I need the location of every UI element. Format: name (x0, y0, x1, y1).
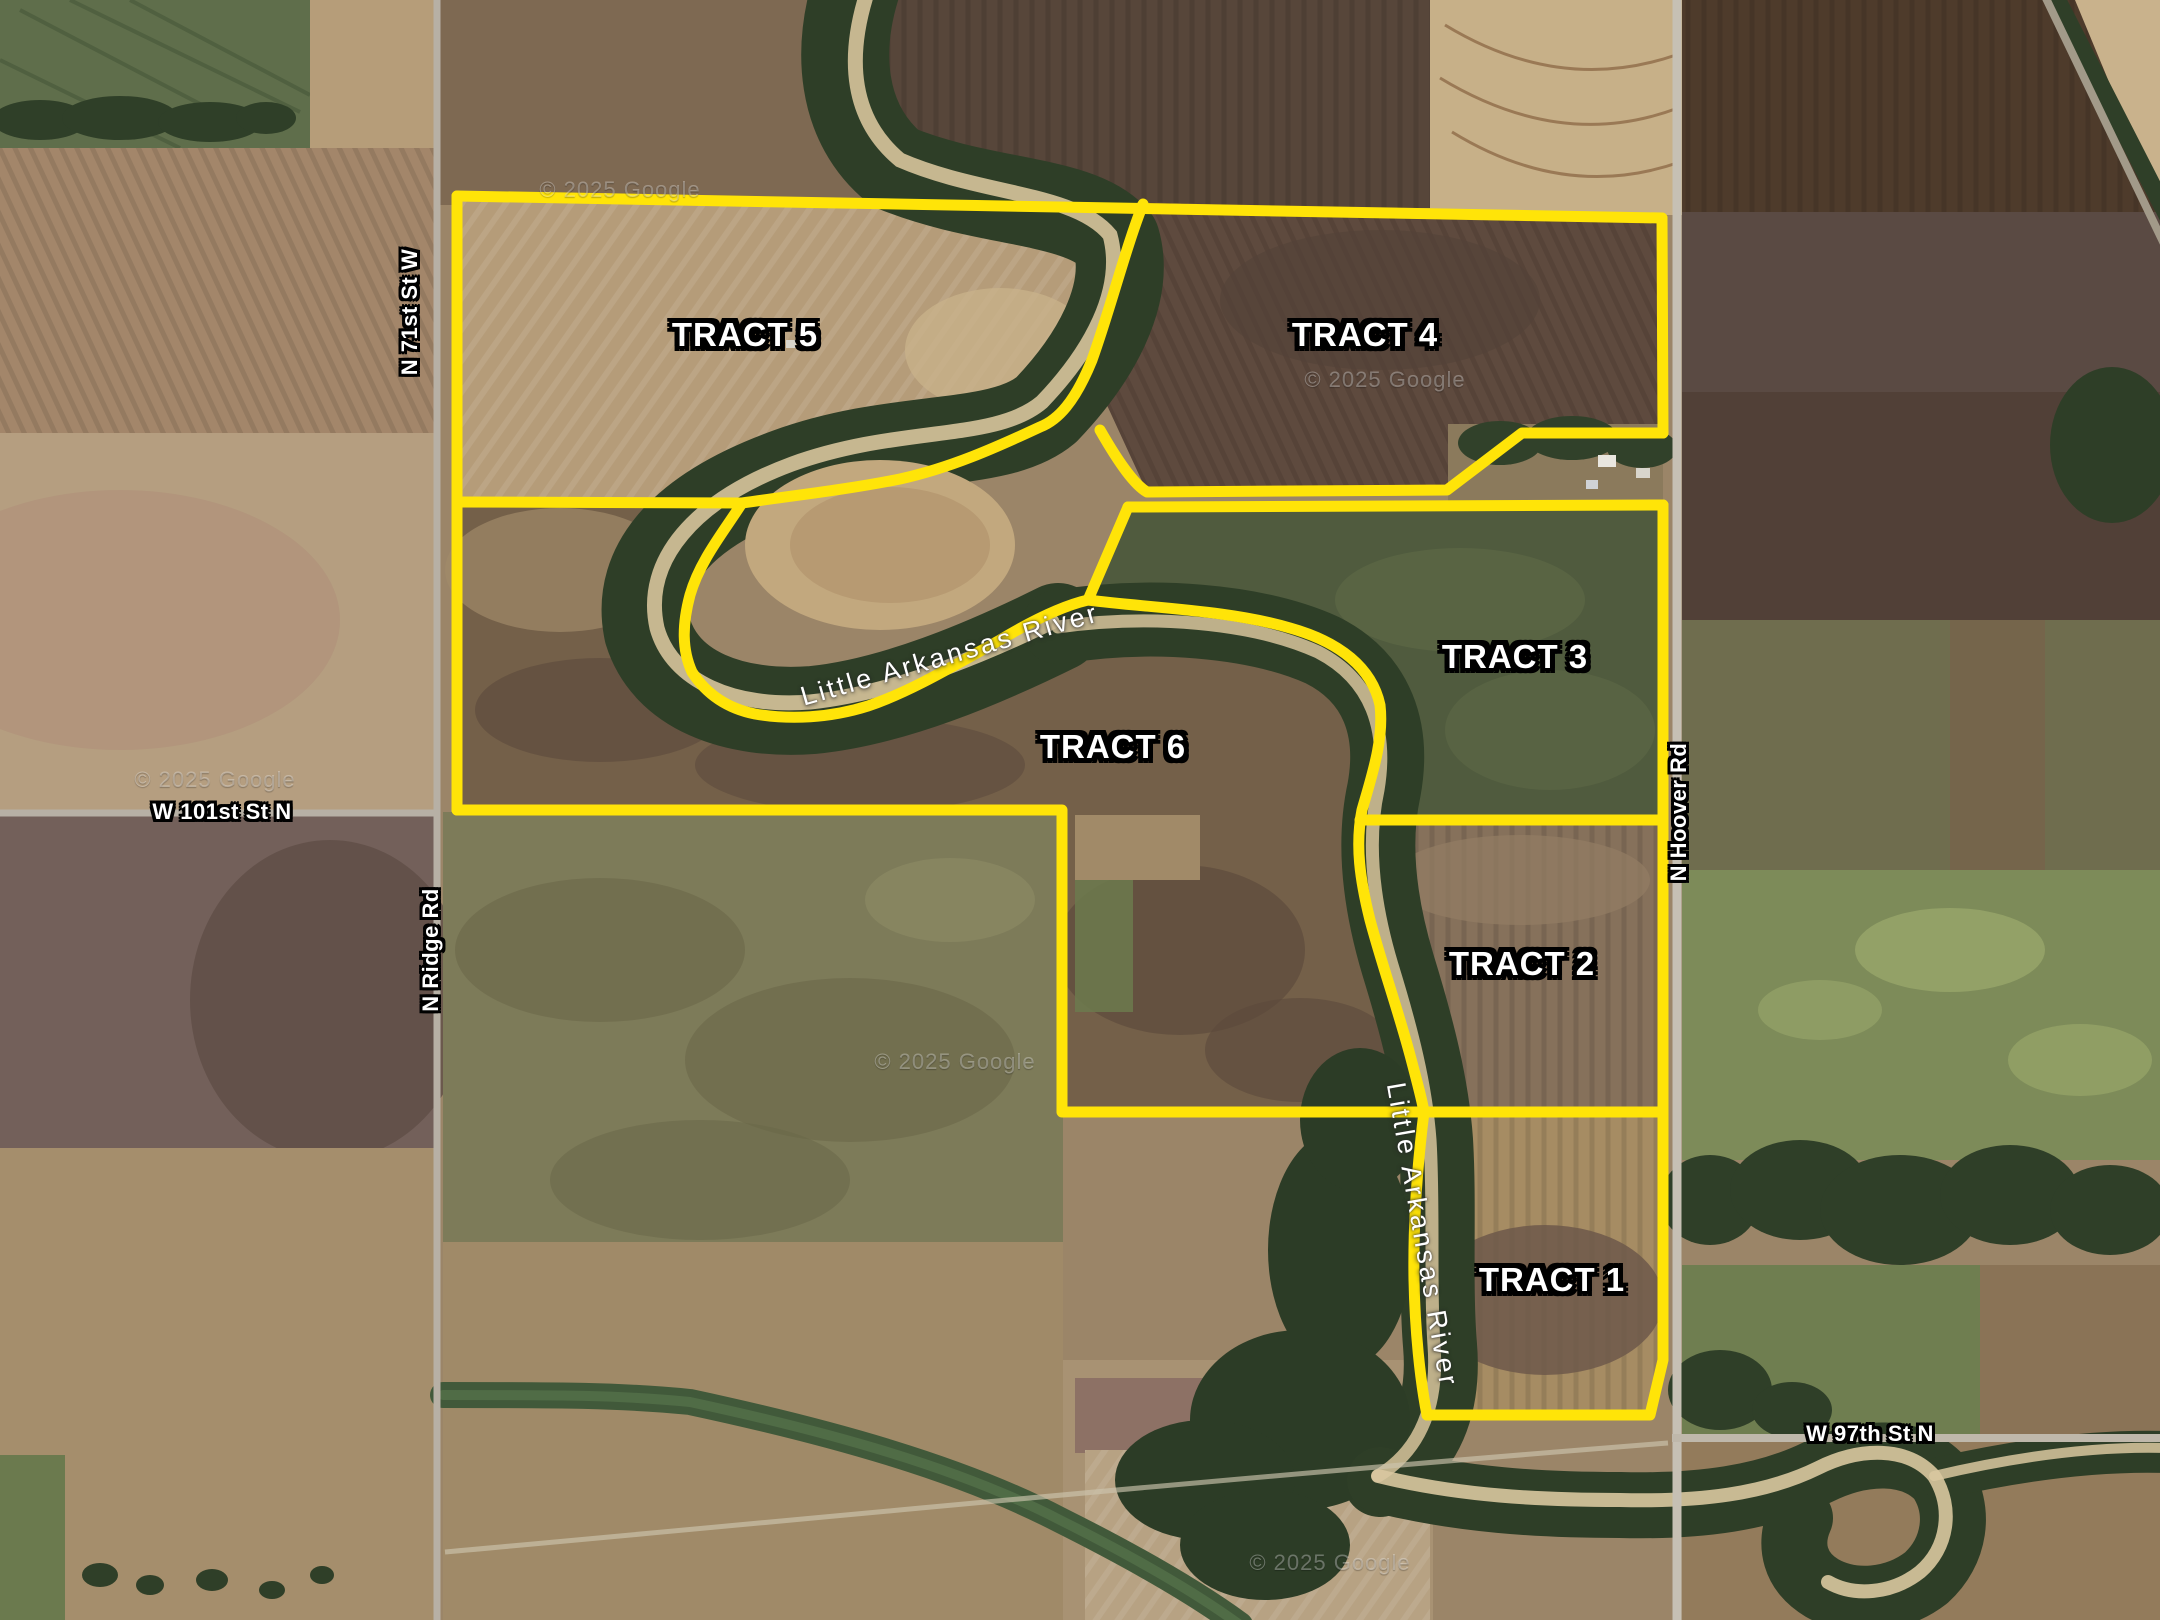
tract-6-label: TRACT 6 (1040, 728, 1186, 766)
tract-3-label: TRACT 3 (1442, 638, 1588, 676)
google-watermark: © 2025 Google (134, 767, 295, 793)
road-label-ridge-rd: N Ridge Rd (418, 888, 444, 1012)
google-watermark: © 2025 Google (539, 177, 700, 203)
satellite-auction-map: TRACT 5 TRACT 4 TRACT 3 TRACT 6 TRACT 2 … (0, 0, 2160, 1620)
road-label-hoover-rd: N Hoover Rd (1666, 743, 1692, 882)
tract-5-label: TRACT 5 (672, 316, 818, 354)
road-label-97th-st: W 97th St N (1806, 1421, 1934, 1447)
tract-2-label: TRACT 2 (1449, 945, 1595, 983)
google-watermark: © 2025 Google (874, 1049, 1035, 1075)
road-label-101st-st: W 101st St N (152, 799, 291, 825)
map-canvas (0, 0, 2160, 1620)
tract-1-label: TRACT 1 (1479, 1261, 1625, 1299)
google-watermark: © 2025 Google (1249, 1550, 1410, 1576)
google-watermark: © 2025 Google (1304, 367, 1465, 393)
tract-4-label: TRACT 4 (1292, 316, 1438, 354)
road-label-71st-st: N 71st St W (397, 249, 423, 376)
